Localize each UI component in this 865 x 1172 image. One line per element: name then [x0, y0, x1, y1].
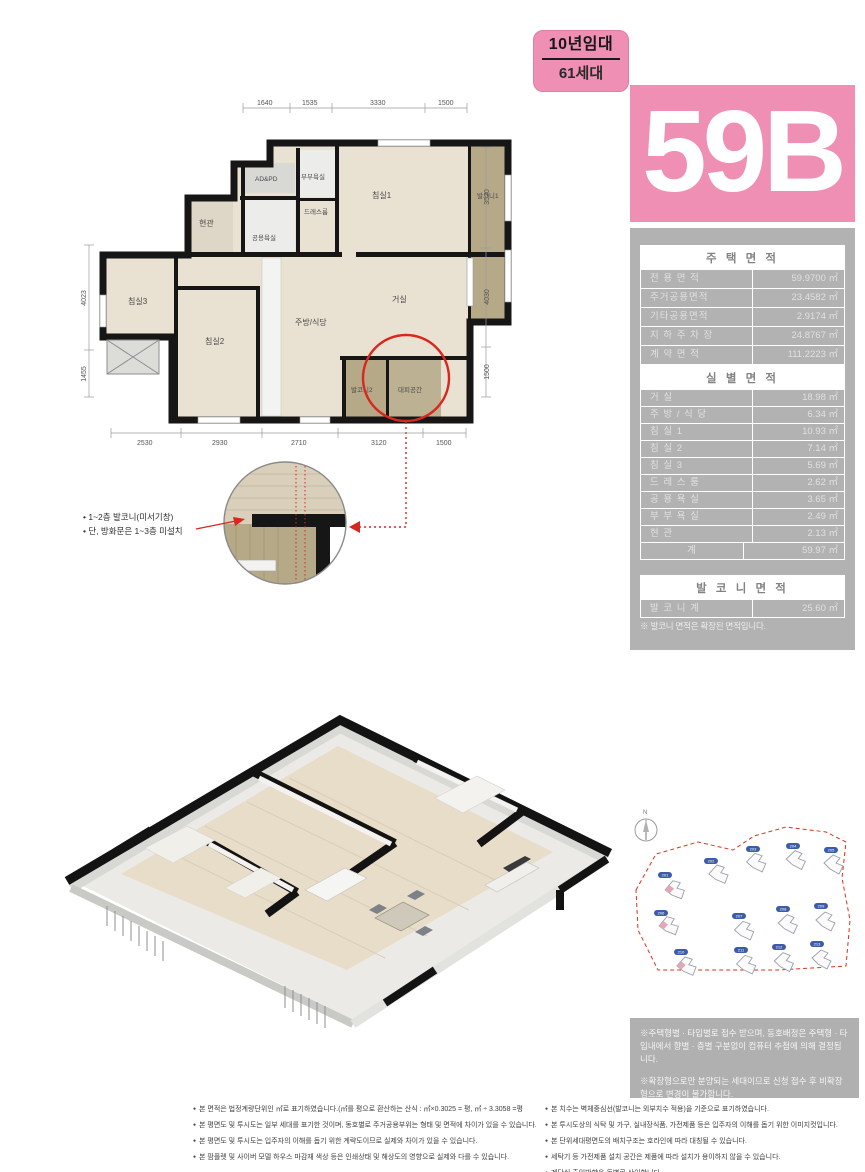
dim-top-1: 1640	[257, 100, 273, 107]
bullet-icon: ●	[545, 1106, 548, 1112]
note-line: ※주택형별 · 타입별로 접수 받으며, 동호배정은 주택형 · 타입내에서 향…	[640, 1027, 849, 1067]
dim-bottom-4: 3120	[371, 440, 387, 447]
site-building	[736, 955, 756, 975]
bullet-icon: ●	[193, 1138, 196, 1144]
callout-line-1: • 1~2층 발코니(미서기창)	[83, 512, 174, 522]
site-building	[658, 915, 679, 936]
dim-top-2: 1535	[302, 100, 318, 107]
dim-right-1: 3520	[484, 189, 491, 205]
table-row: 전 용 면 적59.9700 ㎡	[641, 269, 844, 288]
svg-text:206: 206	[658, 911, 665, 916]
area-tables-panel: 주 택 면 적 전 용 면 적59.9700 ㎡ 주거공용면적23.4582 ㎡…	[630, 228, 855, 650]
svg-text:213: 213	[814, 942, 821, 947]
row-label: 발 코 니 계	[641, 600, 753, 617]
footnote-text: 본 면적은 법정계량단위인 ㎡로 표기하였습니다.(㎡를 평으로 환산하는 산식…	[199, 1106, 523, 1113]
room-label-bedroom1: 침실1	[372, 190, 392, 200]
footnote: ●본 평면도 및 투시도는 입주자의 이해를 돕기 위한 계략도이므로 실제와 …	[193, 1136, 541, 1146]
footnote-text: 세탁기 등 가전제품 설치 공간은 제품에 따라 설치가 용이하지 않을 수 있…	[551, 1154, 780, 1161]
households-label: 61세대	[534, 60, 628, 87]
lease-type-badge: 10년임대 61세대	[533, 30, 629, 92]
dim-top-4: 1500	[438, 100, 454, 107]
svg-text:209: 209	[818, 904, 825, 909]
footnote: ●본 팜플렛 및 사이버 모델 하우스 마감재 색상 등은 인쇄상태 및 해상도…	[193, 1152, 541, 1162]
footnotes-right: ●본 치수는 벽체중심선(발코니는 외부치수 적용)을 기준으로 표기하였습니다…	[545, 1104, 861, 1172]
unit-type-box: 59B	[630, 85, 855, 222]
room-label-living: 거실	[392, 294, 407, 304]
table-row: 지 하 주 차 장24.8767 ㎡	[641, 326, 844, 345]
row-value: 2.13 ㎡	[753, 526, 844, 542]
brochure-page: 10년임대 61세대 59B	[0, 0, 865, 1172]
row-value: 2.62 ㎡	[753, 475, 844, 491]
dim-bottom-3: 2710	[291, 440, 307, 447]
dims-bottom	[111, 428, 466, 438]
svg-text:201: 201	[662, 873, 669, 878]
kitchen-counter	[262, 258, 281, 416]
common-bath-floor	[245, 199, 295, 252]
footnotes-left: ●본 면적은 법정계량단위인 ㎡로 표기하였습니다.(㎡를 평으로 환산하는 산…	[193, 1104, 541, 1168]
bullet-icon: ●	[545, 1154, 548, 1160]
svg-text:204: 204	[790, 844, 797, 849]
svg-text:210: 210	[678, 950, 685, 955]
row-label: 공 용 욕 실	[641, 492, 753, 508]
isometric-view-svg	[55, 678, 625, 1068]
row-label: 현 관	[641, 526, 753, 542]
footnote: ●본 단위세대평면도의 배치구조는 호라인에 따라 대칭될 수 있습니다.	[545, 1136, 861, 1146]
unit-type-code: 59B	[630, 85, 855, 218]
row-label: 계 약 면 적	[641, 346, 753, 364]
bullet-icon: ●	[193, 1122, 196, 1128]
row-value: 24.8767 ㎡	[753, 327, 844, 345]
site-building	[816, 912, 835, 931]
site-building	[664, 879, 685, 900]
footnote: ●본 면적은 법정계량단위인 ㎡로 표기하였습니다.(㎡를 평으로 환산하는 산…	[193, 1104, 541, 1114]
table-row: 침 실 35.69 ㎡	[641, 457, 844, 474]
svg-text:211: 211	[738, 948, 745, 953]
table-row: 드 레 스 룸2.62 ㎡	[641, 474, 844, 491]
bullet-icon: ●	[545, 1138, 548, 1144]
room-label-bedroom2: 침실2	[205, 336, 225, 346]
dim-bottom-2: 2930	[212, 440, 228, 447]
footnote-text: 본 평면도 및 투시도는 일부 세대를 표기한 것이며, 동호별로 주거공용부위…	[199, 1122, 537, 1129]
row-label: 거 실	[641, 390, 753, 406]
svg-text:N: N	[643, 810, 647, 816]
table-row: 기타공용면적2.9174 ㎡	[641, 307, 844, 326]
site-building	[708, 864, 729, 885]
footnote-text: 본 투시도상의 식탁 및 가구, 실내장식품, 가전제품 등은 입주자의 이해를…	[551, 1122, 838, 1129]
footnote-text: 본 평면도 및 투시도는 입주자의 이해를 돕기 위한 계략도이므로 실제와 차…	[199, 1138, 477, 1145]
table-row: 침 실 27.14 ㎡	[641, 440, 844, 457]
room-label-entrance: 현관	[199, 218, 214, 228]
table-row: 거 실18.98 ㎡	[641, 389, 844, 406]
bullet-icon: ●	[193, 1154, 196, 1160]
footnote: ●본 치수는 벽체중심선(발코니는 외부치수 적용)을 기준으로 표기하였습니다…	[545, 1104, 861, 1114]
row-label: 침 실 1	[641, 424, 753, 440]
row-value: 18.98 ㎡	[753, 390, 844, 406]
footnote: ●계단실 출입방향은 동별로 상이합니다.	[545, 1168, 861, 1172]
site-building	[676, 956, 697, 977]
callout-line-2: • 단, 방화문은 1~3층 미설치	[83, 526, 183, 536]
row-value: 2.9174 ㎡	[753, 308, 844, 326]
housing-area-table: 주 택 면 적 전 용 면 적59.9700 ㎡ 주거공용면적23.4582 ㎡…	[640, 245, 845, 365]
room-label-bedroom3: 침실3	[128, 296, 148, 306]
balcony-area-table: 발 코 니 면 적 발 코 니 계25.60 ㎡	[640, 575, 845, 618]
row-label: 드 레 스 룸	[641, 475, 753, 491]
room-label-balcony2: 발코니2	[351, 385, 373, 394]
leader-arrowhead	[349, 521, 360, 533]
room-label-master-bath: 부부욕실	[301, 172, 325, 181]
row-value: 59.9700 ㎡	[753, 270, 844, 288]
compass-icon: N	[635, 810, 657, 841]
table-row: 부 부 욕 실2.49 ㎡	[641, 508, 844, 525]
site-building	[746, 853, 766, 873]
footnote: ●본 평면도 및 투시도는 일부 세대를 표기한 것이며, 동호별로 주거공용부…	[193, 1120, 541, 1130]
detail-circle-content	[224, 462, 350, 590]
site-building	[812, 950, 831, 969]
dim-left-1: 4023	[81, 290, 88, 306]
dim-bottom-1: 2530	[137, 440, 153, 447]
floor-plan-svg: 현관 공용욕실 AD&PD 부부욕실 드레스룸 침실1 발코니1 침실3 침실2…	[55, 85, 525, 630]
stair-core	[107, 340, 159, 374]
footnote: ●세탁기 등 가전제품 설치 공간은 제품에 따라 설치가 용이하지 않을 수 …	[545, 1152, 861, 1162]
room-area-table: 실 별 면 적 거 실18.98 ㎡ 주 방 / 식 당6.34 ㎡ 침 실 1…	[640, 365, 845, 560]
dim-right-3: 1500	[484, 364, 491, 380]
dim-right-2: 4030	[484, 289, 491, 305]
table-row: 계 약 면 적111.2223 ㎡	[641, 345, 844, 364]
row-value: 25.60 ㎡	[753, 600, 844, 617]
footnote-text: 본 치수는 벽체중심선(발코니는 외부치수 적용)을 기준으로 표기하였습니다.	[551, 1106, 769, 1113]
row-value: 6.34 ㎡	[753, 407, 844, 423]
footnote-text: 본 팜플렛 및 사이버 모델 하우스 마감재 색상 등은 인쇄상태 및 해상도의…	[199, 1154, 509, 1161]
assignment-notes-panel: ※주택형별 · 타입별로 접수 받으며, 동호배정은 주택형 · 타입내에서 향…	[630, 1018, 859, 1098]
row-value: 5.69 ㎡	[753, 458, 844, 474]
row-label: 계	[641, 543, 744, 559]
lease-label: 10년임대	[534, 31, 628, 58]
room-label-kitchen: 주방/식당	[295, 317, 327, 327]
row-label: 부 부 욕 실	[641, 509, 753, 525]
site-building	[774, 952, 794, 972]
site-building	[778, 914, 798, 934]
table-row: 계59.97 ㎡	[641, 542, 844, 559]
row-value: 23.4582 ㎡	[753, 289, 844, 307]
svg-text:208: 208	[780, 907, 787, 912]
row-label: 주거공용면적	[641, 289, 753, 307]
row-value: 59.97 ㎡	[744, 543, 844, 559]
table-row: 주거공용면적23.4582 ㎡	[641, 288, 844, 307]
row-label: 침 실 2	[641, 441, 753, 457]
row-label: 전 용 면 적	[641, 270, 753, 288]
site-building	[786, 850, 806, 870]
table-row: 공 용 욕 실3.65 ㎡	[641, 491, 844, 508]
svg-text:202: 202	[708, 859, 715, 864]
bullet-icon: ●	[545, 1122, 548, 1128]
footnote: ●본 투시도상의 식탁 및 가구, 실내장식품, 가전제품 등은 입주자의 이해…	[545, 1120, 861, 1130]
table-row: 주 방 / 식 당6.34 ㎡	[641, 406, 844, 423]
balcony-table-note: ※ 발코니 면적은 확장된 면적입니다.	[640, 620, 766, 632]
site-plan-svg: N 201 202 203 204 205 206 2	[628, 800, 860, 1012]
room-label-refuge: 대피공간	[398, 385, 422, 394]
room-label-ad-pd: AD&PD	[255, 176, 278, 183]
row-value: 2.49 ㎡	[753, 509, 844, 525]
dim-top-3: 3330	[370, 100, 386, 107]
table-row: 침 실 110.93 ㎡	[641, 423, 844, 440]
room-table-title: 실 별 면 적	[641, 366, 844, 389]
row-value: 7.14 ㎡	[753, 441, 844, 457]
housing-table-title: 주 택 면 적	[641, 246, 844, 269]
bullet-icon: ●	[193, 1106, 196, 1112]
svg-text:212: 212	[776, 945, 783, 950]
row-label: 주 방 / 식 당	[641, 407, 753, 423]
dims-top	[243, 103, 467, 113]
svg-text:203: 203	[750, 847, 757, 852]
site-building	[824, 855, 843, 874]
row-label: 기타공용면적	[641, 308, 753, 326]
row-value: 10.93 ㎡	[753, 424, 844, 440]
footnote-text: 본 단위세대평면도의 배치구조는 호라인에 따라 대칭될 수 있습니다.	[551, 1138, 747, 1145]
note-line: ※확장형으로만 분양되는 세대이므로 신청 접수 후 비확장형으로 변경이 불가…	[640, 1075, 849, 1101]
balcony-table-title: 발 코 니 면 적	[641, 576, 844, 599]
row-label: 지 하 주 차 장	[641, 327, 753, 345]
dim-bottom-5: 1500	[436, 440, 452, 447]
table-row: 발 코 니 계25.60 ㎡	[641, 599, 844, 617]
room-label-dress-room: 드레스룸	[304, 207, 328, 216]
table-row: 현 관2.13 ㎡	[641, 525, 844, 542]
svg-text:205: 205	[828, 848, 835, 853]
room-label-common-bath: 공용욕실	[252, 233, 276, 242]
site-building	[734, 921, 754, 941]
row-value: 111.2223 ㎡	[753, 346, 844, 364]
svg-text:207: 207	[736, 914, 743, 919]
row-label: 침 실 3	[641, 458, 753, 474]
dim-left-2: 1455	[81, 366, 88, 382]
row-value: 3.65 ㎡	[753, 492, 844, 508]
